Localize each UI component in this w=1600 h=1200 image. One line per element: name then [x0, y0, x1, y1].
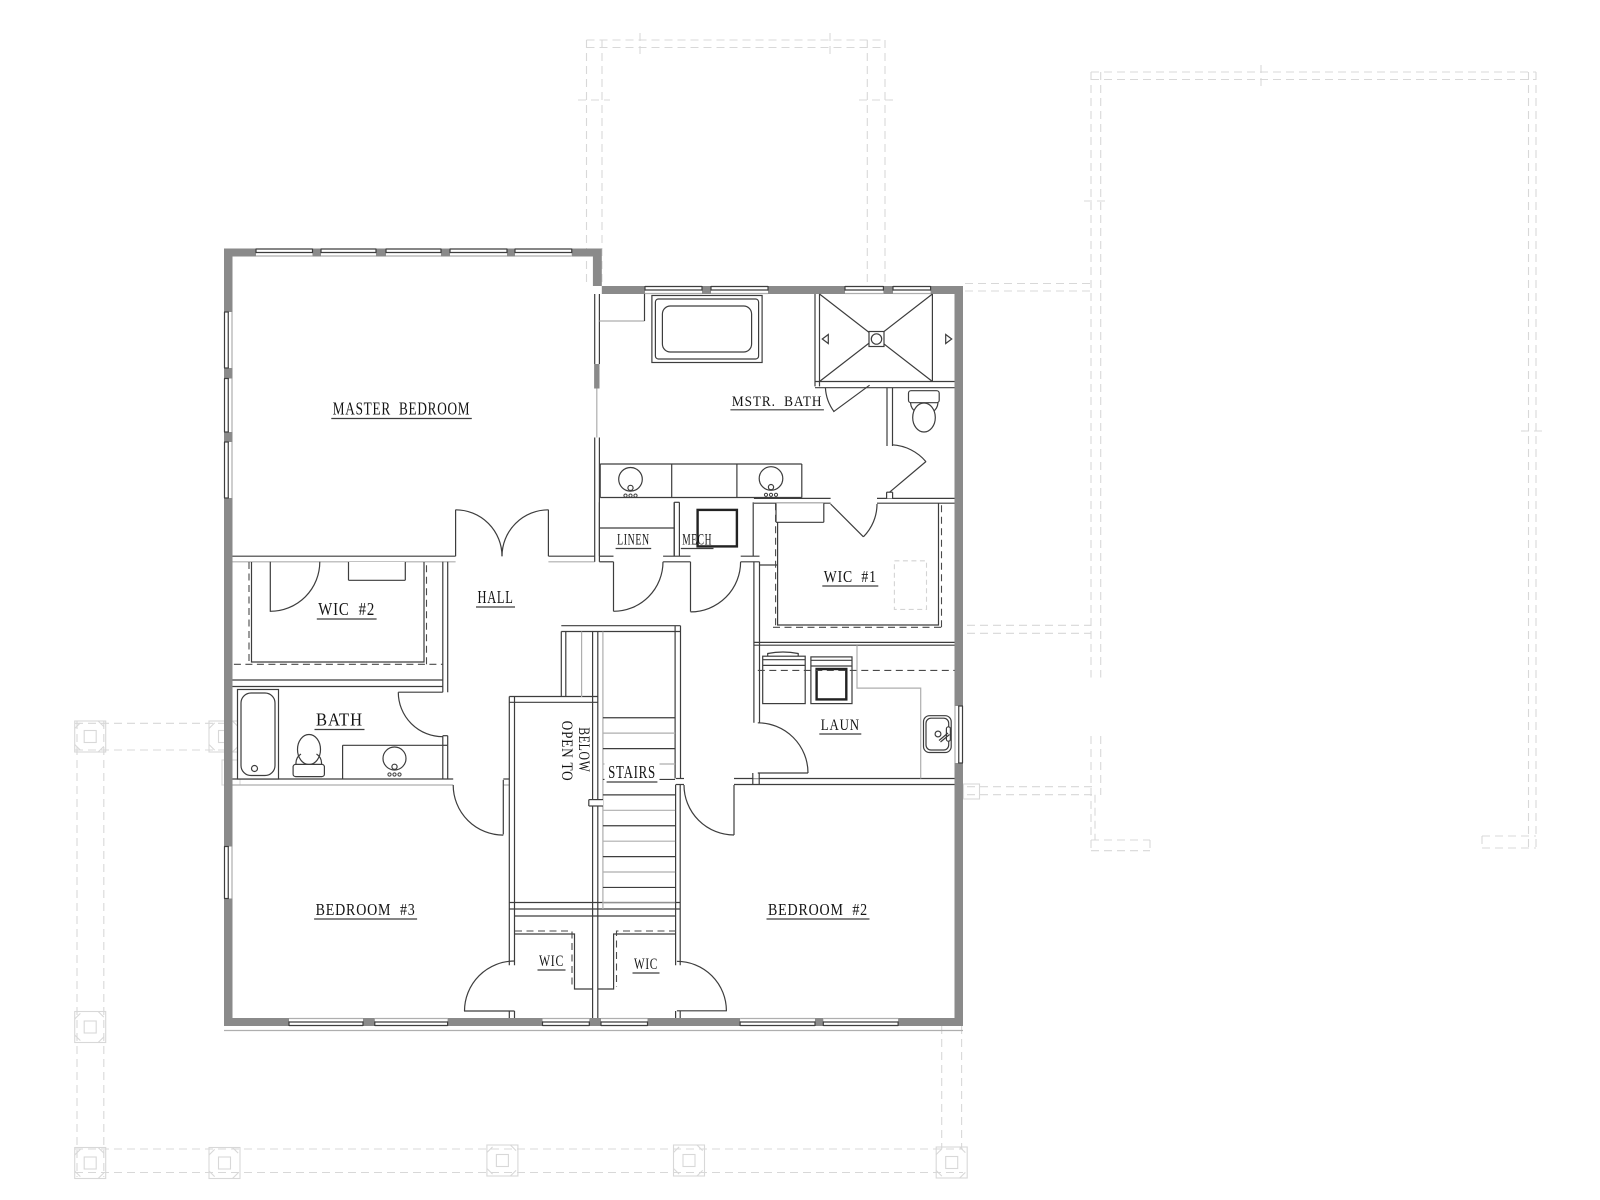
svg-text:BATH: BATH — [316, 710, 363, 730]
svg-text:WIC: WIC — [634, 956, 658, 973]
svg-text:LAUN: LAUN — [821, 717, 860, 734]
svg-text:WIC #2: WIC #2 — [318, 599, 375, 619]
svg-text:WIC: WIC — [539, 953, 564, 970]
svg-text:MECH: MECH — [682, 532, 712, 549]
svg-text:BEDROOM #2: BEDROOM #2 — [768, 900, 868, 919]
svg-text:WIC #1: WIC #1 — [824, 567, 877, 586]
svg-text:BEDROOM #3: BEDROOM #3 — [316, 900, 416, 919]
svg-text:BELOW: BELOW — [575, 727, 592, 772]
svg-text:OPEN TO: OPEN TO — [558, 721, 575, 782]
svg-text:MASTER BEDROOM: MASTER BEDROOM — [333, 399, 471, 419]
svg-text:STAIRS: STAIRS — [608, 762, 656, 782]
svg-text:HALL: HALL — [478, 587, 514, 607]
svg-text:MSTR. BATH: MSTR. BATH — [732, 394, 823, 410]
svg-text:LINEN: LINEN — [617, 532, 650, 549]
